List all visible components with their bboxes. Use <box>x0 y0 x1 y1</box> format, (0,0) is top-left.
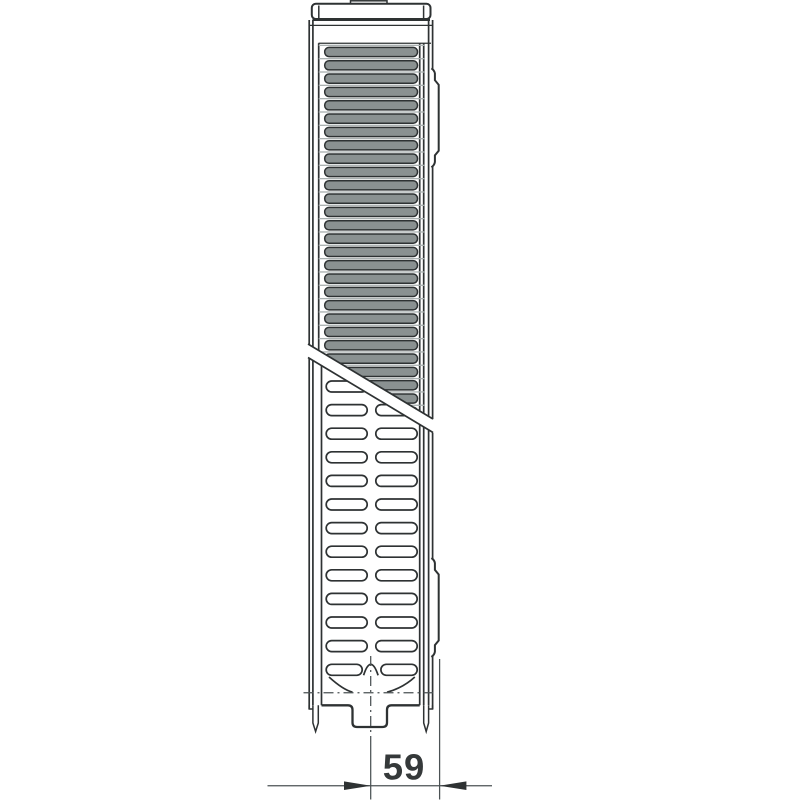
fin-row <box>319 231 425 243</box>
foot-right <box>424 705 429 731</box>
fin-row <box>319 125 425 137</box>
funnel-peak <box>364 664 379 675</box>
fin-slat <box>325 221 418 230</box>
fin-row <box>319 151 425 163</box>
convector-slot-rows <box>326 357 417 675</box>
dimension-label: 59 <box>383 747 426 788</box>
fin-row <box>319 338 425 350</box>
convector-slot-row <box>326 593 417 604</box>
fin-slat <box>325 181 418 190</box>
fin-gap-line <box>319 151 425 152</box>
fin-slat <box>325 234 418 243</box>
fin-slat <box>325 247 418 256</box>
fin-slat <box>325 61 418 70</box>
fin-row <box>319 271 425 283</box>
fin-row <box>319 138 425 150</box>
fin-row <box>319 391 425 403</box>
convector-slot-row-last <box>326 664 417 675</box>
fin-gap-line <box>319 258 425 259</box>
front-grille-section <box>309 20 432 440</box>
fin-slat <box>325 167 418 176</box>
fin-row <box>319 245 425 257</box>
convector-slot-row <box>326 570 417 581</box>
fin-slat <box>325 301 418 310</box>
fin-gap-line <box>319 298 425 299</box>
fin-gap-line <box>319 245 425 246</box>
fin-row <box>319 45 425 57</box>
convector-slot-row <box>326 475 417 486</box>
fin-gap-line <box>319 311 425 312</box>
fin-slat <box>325 207 418 216</box>
convector-slot-row <box>326 452 417 463</box>
fin-slat <box>325 74 418 83</box>
wall-bracket-upper <box>431 68 438 167</box>
fin-slat <box>325 87 418 96</box>
fin-slat <box>325 114 418 123</box>
fin-row <box>319 351 425 363</box>
wall-bracket-lower <box>431 558 438 657</box>
fin-slat <box>325 194 418 203</box>
fin-gap-line <box>319 138 425 139</box>
fin-gap-line <box>319 231 425 232</box>
fin-gap-line <box>319 378 425 379</box>
fin-gap-line <box>319 98 425 99</box>
fin-row <box>319 111 425 123</box>
fin-slat <box>325 154 418 163</box>
fin-row <box>319 98 425 110</box>
fin-row <box>319 298 425 310</box>
fin-row <box>319 178 425 190</box>
radiator-side-view: 59 <box>0 0 800 800</box>
fin-row <box>319 311 425 323</box>
fin-gap-line <box>319 351 425 352</box>
fin-row <box>319 165 425 177</box>
fin-slat <box>325 341 418 350</box>
fin-gap-line <box>319 325 425 326</box>
convector-slot-row <box>326 546 417 557</box>
fin-gap-line <box>319 338 425 339</box>
drawing-root: 59 <box>268 1 493 800</box>
top-cap <box>312 4 431 19</box>
fin-row <box>319 258 425 270</box>
fin-slat <box>325 47 418 56</box>
fin-gap-line <box>319 111 425 112</box>
bottom-funnel <box>329 677 415 692</box>
fin-slat <box>325 127 418 136</box>
fin-gap-line <box>319 165 425 166</box>
fin-gap-line <box>319 125 425 126</box>
convector-slot-row <box>326 499 417 510</box>
fin-gap-line <box>319 71 425 72</box>
fin-row <box>319 365 425 377</box>
radiator-technical-drawing: 59 <box>0 0 800 800</box>
fin-gap-line <box>319 45 425 46</box>
fin-gap-line <box>319 285 425 286</box>
fin-slat <box>325 261 418 270</box>
fin-gap-line <box>319 178 425 179</box>
fin-row <box>319 218 425 230</box>
fin-row <box>319 85 425 97</box>
fin-slat <box>325 101 418 110</box>
fin-gap-line <box>319 85 425 86</box>
fin-gap-line <box>319 218 425 219</box>
dimension-arrow-left <box>344 781 371 790</box>
fin-gap-line <box>319 365 425 366</box>
fin-slat <box>325 314 418 323</box>
convector-slot-row <box>326 617 417 628</box>
fin-slat <box>325 287 418 296</box>
convector-slot-row <box>326 523 417 534</box>
fin-gap-line <box>319 58 425 59</box>
fin-gap-line <box>319 205 425 206</box>
convector-slot-row <box>326 641 417 652</box>
fin-row <box>319 191 425 203</box>
fin-gap-line <box>319 191 425 192</box>
fin-gap-line <box>319 271 425 272</box>
fin-slat <box>325 141 418 150</box>
fin-row <box>319 71 425 83</box>
foot-left <box>313 705 318 731</box>
grille-fins <box>319 45 425 430</box>
fin-row <box>319 205 425 217</box>
fin-slat <box>325 327 418 336</box>
fin-row <box>319 325 425 337</box>
top-cap-assembly <box>309 1 433 26</box>
fin-row <box>319 285 425 297</box>
fin-row <box>319 58 425 70</box>
convector-slot-row <box>326 428 417 439</box>
fin-slat <box>325 274 418 283</box>
dimension-arrow-right <box>439 781 466 790</box>
